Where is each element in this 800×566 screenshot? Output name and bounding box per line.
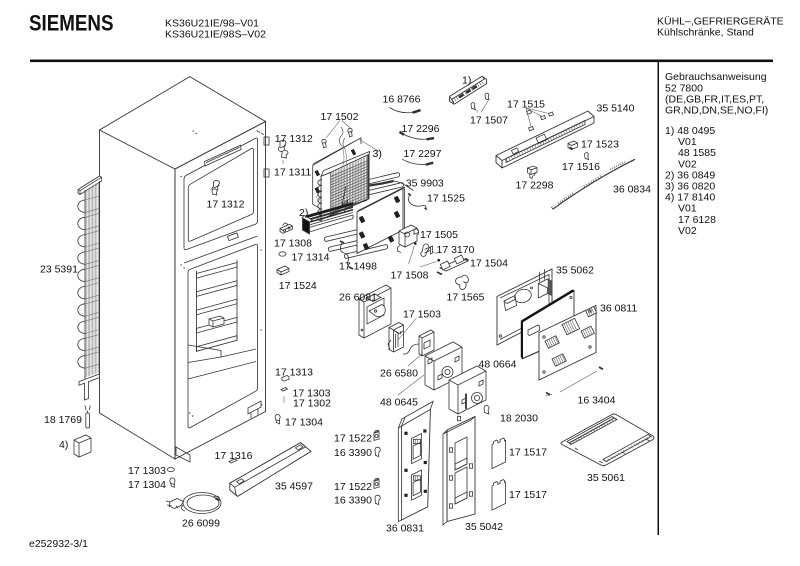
svg-text:17 1304: 17 1304 — [285, 416, 323, 428]
svg-text:36 0834: 36 0834 — [613, 183, 651, 195]
svg-text:17 1311: 17 1311 — [274, 166, 311, 178]
svg-text:26 6580: 26 6580 — [380, 367, 418, 379]
svg-text:4): 4) — [59, 439, 68, 451]
svg-text:e252932-3/1: e252932-3/1 — [29, 538, 88, 550]
svg-text:GR,ND,DN,SE,NO,FI): GR,ND,DN,SE,NO,FI) — [665, 105, 768, 117]
svg-text:17 2296: 17 2296 — [402, 123, 440, 135]
svg-text:17 1508: 17 1508 — [391, 270, 429, 282]
svg-text:3): 3) — [373, 148, 382, 160]
svg-text:KS36U21IE/98S–V02: KS36U21IE/98S–V02 — [165, 28, 266, 40]
svg-text:17 1308: 17 1308 — [274, 238, 312, 250]
svg-text:16 3404: 16 3404 — [578, 394, 616, 406]
svg-text:17 1517: 17 1517 — [509, 446, 547, 458]
svg-text:17 1524: 17 1524 — [279, 280, 317, 292]
svg-text:Kühlschränke, Stand: Kühlschränke, Stand — [657, 26, 754, 38]
svg-text:36 0831: 36 0831 — [386, 522, 424, 534]
svg-text:16 3390: 16 3390 — [334, 447, 372, 459]
svg-text:26 6099: 26 6099 — [182, 517, 220, 529]
svg-text:17 2297: 17 2297 — [404, 148, 442, 160]
svg-text:17 1516: 17 1516 — [562, 161, 600, 173]
svg-text:17 1304: 17 1304 — [128, 479, 166, 491]
svg-text:17 1504: 17 1504 — [470, 258, 508, 270]
svg-text:2): 2) — [299, 207, 308, 219]
svg-text:48 0645: 48 0645 — [380, 396, 418, 408]
svg-text:17 3170: 17 3170 — [437, 244, 475, 256]
svg-text:17 1517: 17 1517 — [509, 489, 547, 501]
svg-text:16 3390: 16 3390 — [334, 494, 372, 506]
svg-text:26 6081: 26 6081 — [339, 292, 377, 304]
svg-text:35 9903: 35 9903 — [406, 178, 444, 190]
svg-text:17 1316: 17 1316 — [215, 450, 253, 462]
svg-text:V02: V02 — [678, 225, 697, 237]
svg-text:17 1313: 17 1313 — [275, 366, 313, 378]
svg-text:17 1505: 17 1505 — [420, 229, 458, 241]
svg-text:17 1523: 17 1523 — [581, 138, 619, 150]
svg-text:17 1312: 17 1312 — [275, 133, 313, 145]
svg-text:17 1503: 17 1503 — [403, 308, 441, 320]
svg-text:35 5061: 35 5061 — [587, 472, 625, 484]
svg-text:17 1314: 17 1314 — [292, 251, 330, 263]
svg-text:SIEMENS: SIEMENS — [29, 11, 114, 36]
svg-text:16 8766: 16 8766 — [383, 93, 421, 105]
svg-text:1): 1) — [462, 74, 471, 86]
svg-text:48 0664: 48 0664 — [479, 358, 517, 370]
svg-text:35 5062: 35 5062 — [556, 264, 594, 276]
svg-text:17 1525: 17 1525 — [427, 193, 465, 205]
svg-text:18 2030: 18 2030 — [500, 412, 538, 424]
svg-text:23 5391: 23 5391 — [40, 263, 78, 275]
svg-text:17 1303: 17 1303 — [128, 465, 166, 477]
svg-text:35 5140: 35 5140 — [597, 102, 635, 114]
svg-text:17 1502: 17 1502 — [321, 111, 359, 123]
svg-text:17 2298: 17 2298 — [516, 179, 554, 191]
svg-text:17 1522: 17 1522 — [334, 432, 372, 444]
svg-text:17 1522: 17 1522 — [334, 481, 372, 493]
svg-text:36 0811: 36 0811 — [600, 302, 637, 314]
svg-text:17 1515: 17 1515 — [507, 98, 545, 110]
svg-text:35 4597: 35 4597 — [275, 480, 313, 492]
svg-text:17 1498: 17 1498 — [339, 260, 377, 272]
svg-text:17 1565: 17 1565 — [447, 291, 485, 303]
svg-text:17 1312: 17 1312 — [207, 199, 245, 211]
svg-text:18 1769: 18 1769 — [44, 414, 82, 426]
svg-text:17 1507: 17 1507 — [470, 114, 508, 126]
svg-text:35 5042: 35 5042 — [465, 521, 503, 533]
svg-text:17 1302: 17 1302 — [293, 398, 331, 410]
